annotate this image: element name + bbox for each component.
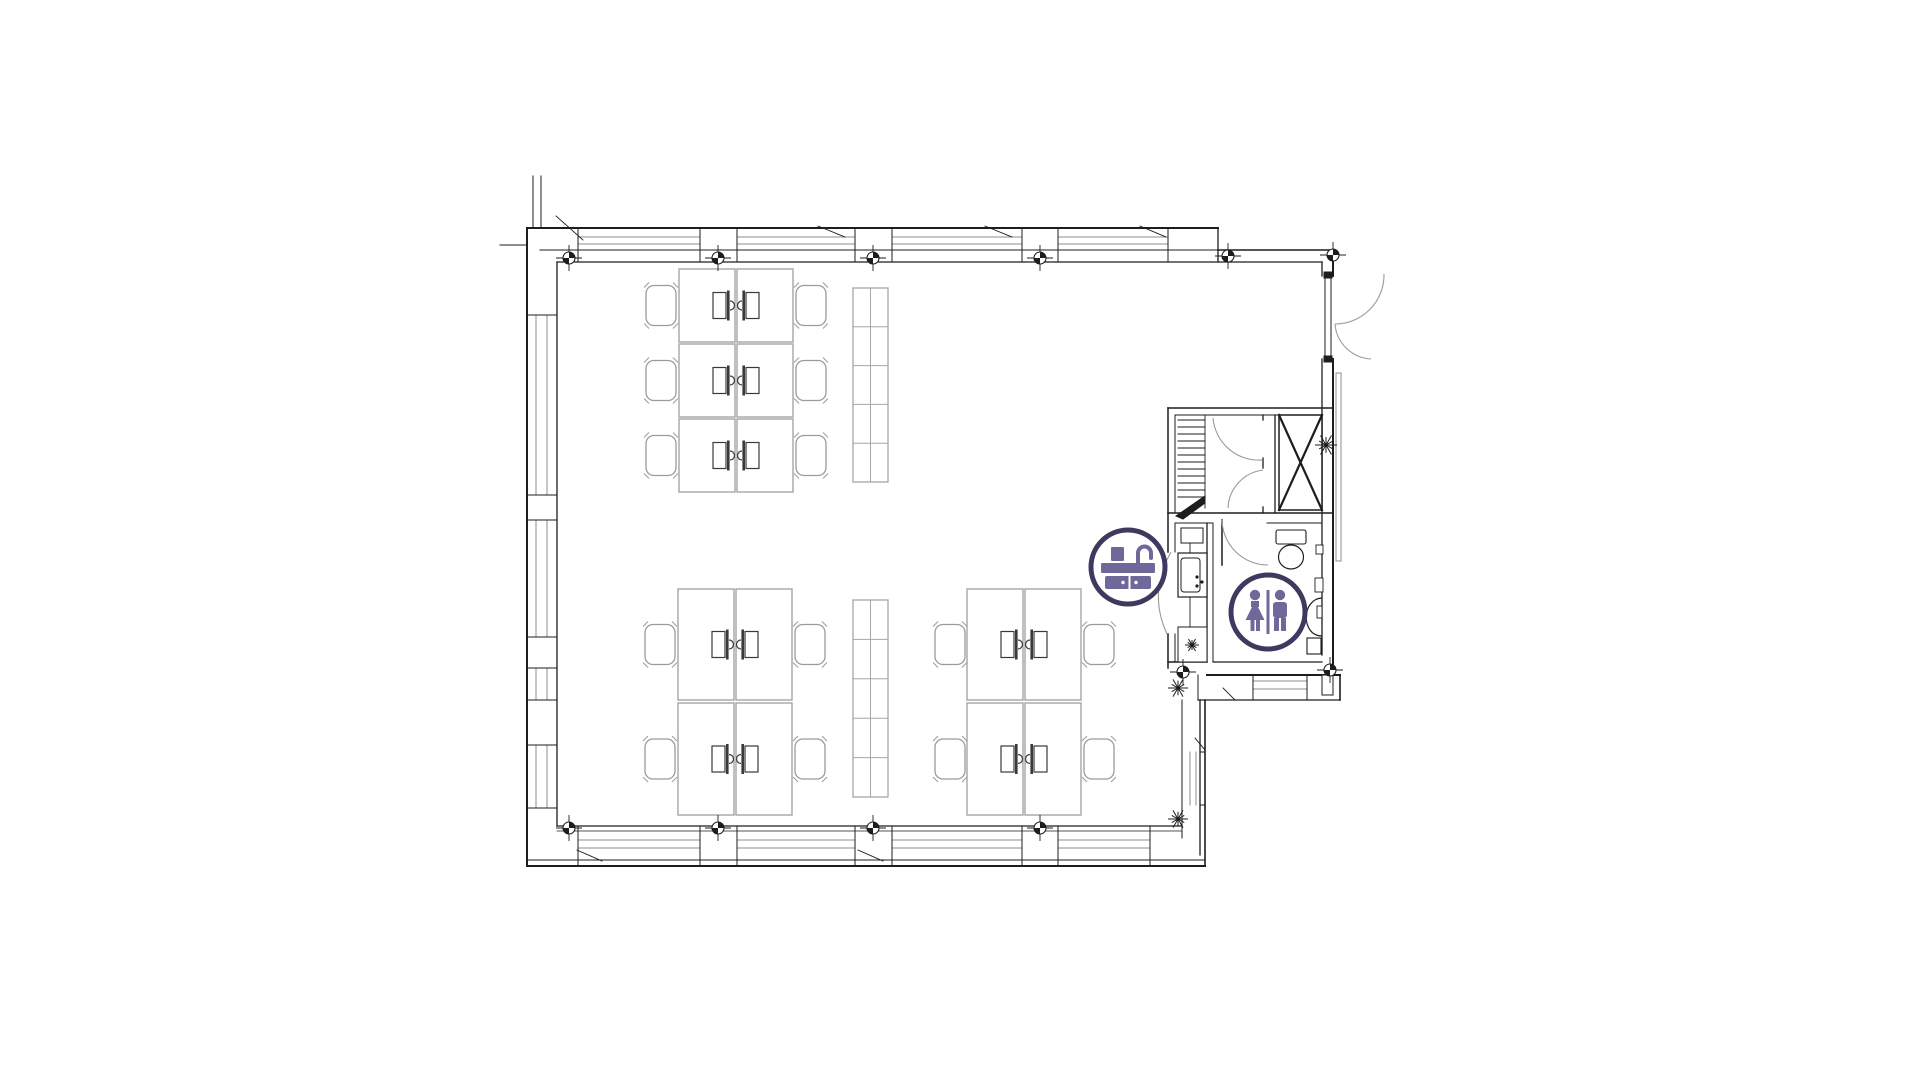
chair-seat	[795, 625, 825, 665]
marker-quadrant	[712, 828, 718, 834]
chair-armrest	[793, 736, 798, 741]
chair-armrest	[822, 736, 827, 741]
office-chair	[1082, 622, 1116, 668]
annotation-diagonal	[858, 850, 883, 861]
office-chair	[793, 736, 827, 782]
kitchen-sink-icon[interactable]	[1091, 530, 1165, 604]
office-chair	[644, 283, 678, 329]
chair-armrest	[1082, 777, 1087, 782]
toilet-bowl	[1279, 545, 1304, 569]
monitor-screen	[712, 632, 725, 658]
marker-quadrant	[1330, 664, 1336, 670]
grid-marker	[705, 815, 731, 841]
chair-armrest	[794, 399, 799, 404]
starburst-symbol	[1168, 679, 1188, 696]
monitor-stand	[1030, 630, 1033, 660]
chair-armrest	[823, 399, 828, 404]
grid-marker	[1215, 243, 1241, 269]
monitor-screen	[746, 368, 759, 394]
entrance-door-swing	[1335, 274, 1384, 324]
chair-seat	[795, 739, 825, 779]
monitor-screen	[746, 293, 759, 319]
grid-marker	[705, 245, 731, 271]
chair-seat	[796, 436, 826, 476]
monitor-screen	[1001, 746, 1014, 772]
chair-armrest	[672, 736, 677, 741]
chair-armrest	[794, 358, 799, 363]
woman-torso	[1251, 601, 1259, 607]
monitor-stand	[727, 441, 730, 471]
chair-armrest	[644, 433, 649, 438]
chair-seat	[646, 361, 676, 401]
man-head	[1275, 590, 1285, 600]
chair-seat	[935, 625, 965, 665]
monitor-stand	[727, 291, 730, 321]
chair-armrest	[673, 358, 678, 363]
cabinet-handle	[1134, 581, 1137, 584]
chair-armrest	[644, 283, 649, 288]
chair-armrest	[793, 777, 798, 782]
chair-armrest	[822, 663, 827, 668]
chair-armrest	[644, 324, 649, 329]
monitor-screen	[745, 632, 758, 658]
chair-armrest	[643, 736, 648, 741]
chair-armrest	[673, 324, 678, 329]
chair-armrest	[1082, 663, 1087, 668]
stair-direction-arrow	[1176, 496, 1205, 519]
furniture-layer	[643, 269, 1116, 815]
chair-armrest	[962, 736, 967, 741]
office-chair	[643, 736, 677, 782]
marker-quadrant	[1040, 822, 1046, 828]
office-chair	[643, 622, 677, 668]
toilet-cistern	[1276, 530, 1306, 544]
monitor-screen	[713, 443, 726, 469]
marker-quadrant	[1177, 672, 1183, 678]
chair-armrest	[673, 474, 678, 479]
monitor-stand	[726, 744, 729, 774]
restroom-icon[interactable]	[1231, 575, 1305, 649]
desk-cluster-northwest	[644, 269, 828, 492]
chair-seat	[796, 361, 826, 401]
monitor-screen	[745, 746, 758, 772]
monitor-screen	[713, 293, 726, 319]
office-chair	[793, 622, 827, 668]
office-chair	[1082, 736, 1116, 782]
chair-armrest	[962, 622, 967, 627]
wall-step	[1322, 675, 1333, 695]
bathroom-bin	[1307, 638, 1321, 654]
office-chair	[794, 283, 828, 329]
chair-armrest	[644, 399, 649, 404]
floor-plan	[0, 0, 1921, 1080]
chair-seat	[1084, 625, 1114, 665]
marker-quadrant	[718, 252, 724, 258]
chair-seat	[645, 739, 675, 779]
chair-armrest	[793, 663, 798, 668]
man-leg	[1274, 618, 1279, 631]
chair-armrest	[643, 622, 648, 627]
grid-marker	[1317, 657, 1343, 683]
chair-armrest	[823, 474, 828, 479]
monitor-stand	[742, 441, 745, 471]
chair-armrest	[1111, 736, 1116, 741]
chair-armrest	[794, 474, 799, 479]
marker-quadrant	[1040, 252, 1046, 258]
chair-seat	[646, 286, 676, 326]
monitor-stand	[1015, 630, 1018, 660]
marker-quadrant	[1183, 666, 1189, 672]
chair-armrest	[933, 663, 938, 668]
chair-armrest	[962, 777, 967, 782]
chair-armrest	[643, 777, 648, 782]
chair-armrest	[672, 622, 677, 627]
marker-quadrant	[1333, 249, 1339, 255]
door-hinge	[1324, 356, 1332, 362]
chair-armrest	[823, 283, 828, 288]
chair-armrest	[644, 474, 649, 479]
bathroom-door-swing	[1222, 520, 1268, 565]
cabinet-gap	[1129, 576, 1131, 589]
chair-armrest	[794, 433, 799, 438]
chair-armrest	[672, 777, 677, 782]
shelving-north	[853, 288, 888, 482]
faucet-dot	[1200, 580, 1203, 583]
marker-quadrant	[873, 252, 879, 258]
chair-armrest	[823, 358, 828, 363]
marker-quadrant	[718, 822, 724, 828]
exterior-railing	[1336, 373, 1341, 561]
chair-seat	[646, 436, 676, 476]
faucet-dot	[1195, 575, 1198, 578]
sink-cabinet	[1105, 576, 1151, 589]
marker-quadrant	[867, 828, 873, 834]
desk-cluster-southwest	[643, 589, 827, 815]
marker-quadrant	[1228, 250, 1234, 256]
floor-plan-canvas	[0, 0, 1921, 1080]
annotation-diagonal	[1223, 688, 1235, 700]
chair-armrest	[644, 358, 649, 363]
monitor-stand	[741, 744, 744, 774]
office-chair	[644, 433, 678, 479]
chair-armrest	[794, 283, 799, 288]
chair-armrest	[822, 777, 827, 782]
woman-leg	[1251, 620, 1255, 631]
chair-armrest	[1111, 777, 1116, 782]
walls-layer	[500, 176, 1340, 866]
chair-armrest	[673, 399, 678, 404]
basin-tap	[1317, 606, 1322, 618]
monitor-screen	[1034, 632, 1047, 658]
wall-fixture	[1316, 545, 1323, 554]
grid-marker	[1027, 245, 1053, 271]
sink-counter	[1101, 563, 1155, 573]
monitor-screen	[713, 368, 726, 394]
chair-seat	[796, 286, 826, 326]
chair-armrest	[673, 433, 678, 438]
marker-quadrant	[873, 822, 879, 828]
monitor-screen	[746, 443, 759, 469]
chair-seat	[1084, 739, 1114, 779]
monitor-stand	[742, 291, 745, 321]
soap-box	[1111, 547, 1124, 561]
marker-quadrant	[563, 828, 569, 834]
starburst-symbol	[1168, 810, 1188, 827]
kitchen-wall-cabinet	[1181, 528, 1203, 543]
shelving-south	[853, 600, 888, 797]
woman-leg	[1256, 620, 1260, 631]
marker-quadrant	[569, 252, 575, 258]
chair-armrest	[794, 324, 799, 329]
man-torso	[1273, 602, 1287, 618]
monitor-screen	[1034, 746, 1047, 772]
faucet-dot	[1195, 584, 1198, 587]
monitor-stand	[741, 630, 744, 660]
marker-quadrant	[563, 258, 569, 264]
annotation-diagonal	[577, 850, 602, 861]
chair-armrest	[643, 663, 648, 668]
marker-quadrant	[1034, 258, 1040, 264]
woman-head	[1250, 590, 1260, 600]
office-chair	[933, 622, 967, 668]
chair-armrest	[672, 663, 677, 668]
stair-door-swing	[1228, 470, 1263, 508]
chair-armrest	[673, 283, 678, 288]
marker-quadrant	[569, 822, 575, 828]
chair-armrest	[1082, 736, 1087, 741]
marker-quadrant	[1222, 256, 1228, 262]
entrance-door-swing	[1335, 324, 1371, 359]
chair-armrest	[823, 324, 828, 329]
grid-marker	[860, 245, 886, 271]
office-chair	[933, 736, 967, 782]
chair-armrest	[1082, 622, 1087, 627]
marker-quadrant	[1327, 255, 1333, 261]
monitor-stand	[726, 630, 729, 660]
monitor-stand	[742, 366, 745, 396]
grid-marker	[1027, 815, 1053, 841]
chair-armrest	[823, 433, 828, 438]
chair-armrest	[933, 777, 938, 782]
chair-seat	[645, 625, 675, 665]
chair-armrest	[822, 622, 827, 627]
divider-bar	[1267, 590, 1270, 634]
monitor-stand	[1030, 744, 1033, 774]
chair-armrest	[962, 663, 967, 668]
marker-quadrant	[1034, 828, 1040, 834]
chair-armrest	[1111, 622, 1116, 627]
chair-armrest	[793, 622, 798, 627]
stair-door-swing	[1213, 418, 1262, 460]
wall-fixture	[1315, 578, 1323, 592]
office-chair	[794, 358, 828, 404]
office-chair	[644, 358, 678, 404]
monitor-screen	[1001, 632, 1014, 658]
man-leg	[1281, 618, 1286, 631]
office-chair	[794, 433, 828, 479]
monitor-screen	[712, 746, 725, 772]
monitor-stand	[1015, 744, 1018, 774]
marker-quadrant	[712, 258, 718, 264]
door-hinge	[1324, 272, 1332, 278]
marker-quadrant	[867, 258, 873, 264]
grid-marker	[1320, 242, 1346, 268]
cabinet-handle	[1121, 581, 1124, 584]
chair-armrest	[933, 622, 938, 627]
desk-cluster-south	[933, 589, 1116, 815]
monitor-stand	[727, 366, 730, 396]
chair-seat	[935, 739, 965, 779]
entrance-door-leaf	[1325, 277, 1331, 358]
chair-armrest	[1111, 663, 1116, 668]
chair-armrest	[933, 736, 938, 741]
grid-marker	[860, 815, 886, 841]
